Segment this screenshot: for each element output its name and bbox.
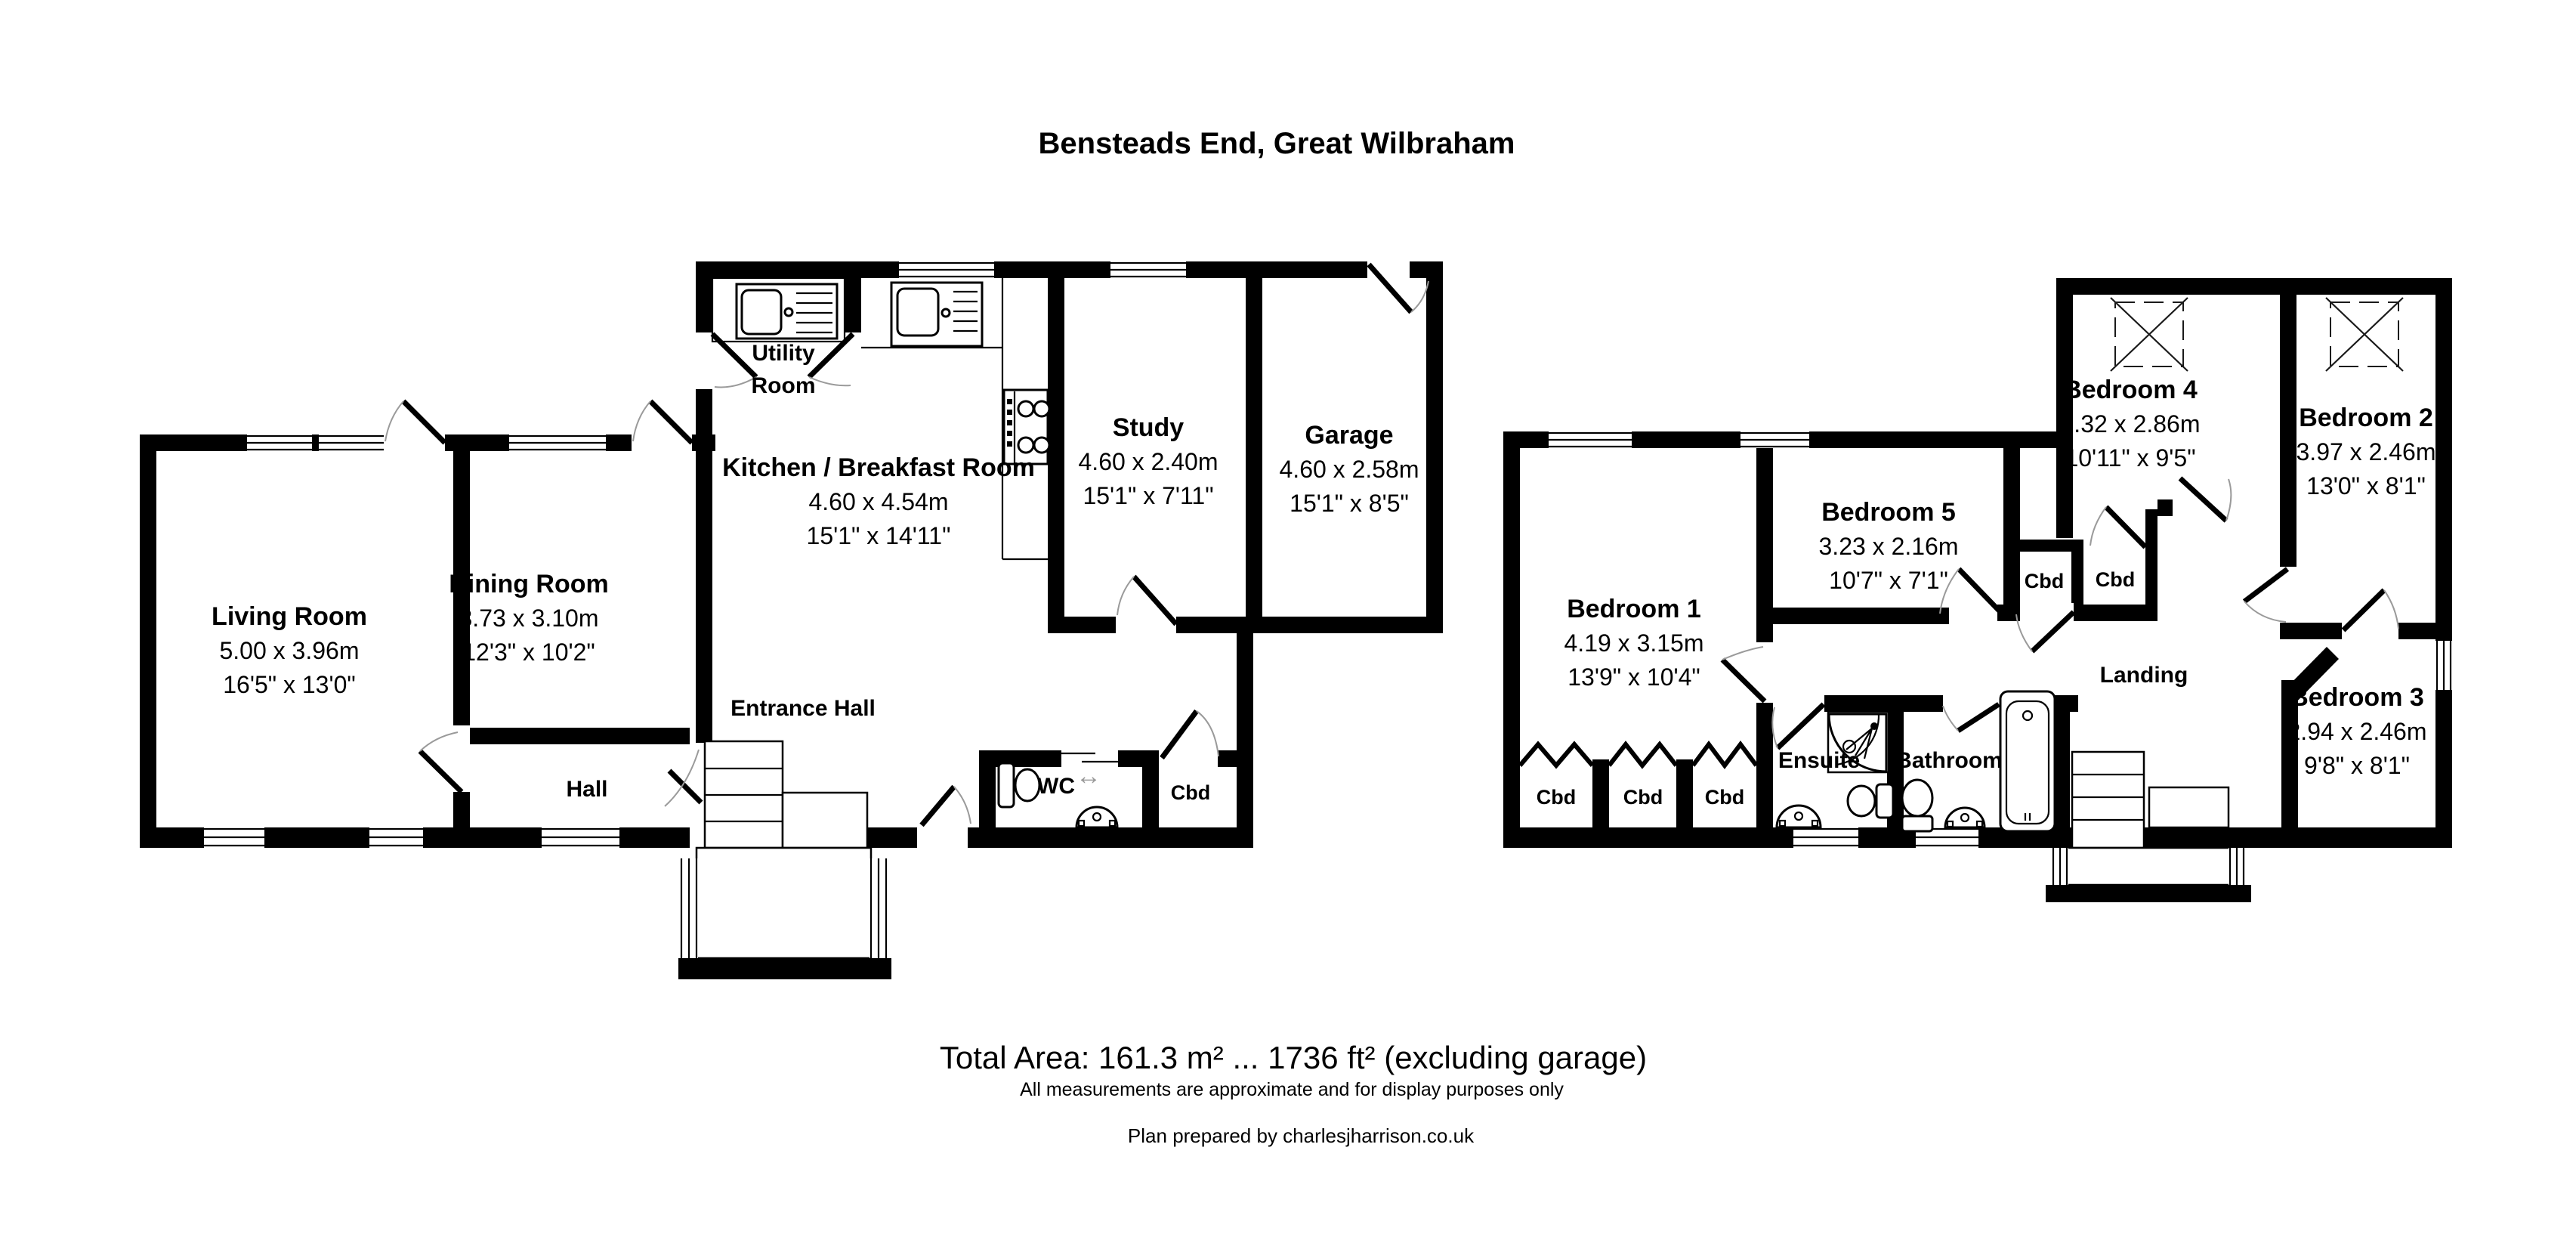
disclaimer-text: All measurements are approximate and for… — [1020, 1079, 1564, 1101]
bathroom-sink — [1945, 808, 1985, 827]
roof-window-bedroom2 — [2326, 298, 2403, 371]
room-label-bedroom-1: Bedroom 1 4.19 x 3.15m 13'9" x 10'4" — [1564, 592, 1704, 694]
room-label-garage: Garage 4.60 x 2.58m 15'1" x 8'5" — [1280, 419, 1419, 521]
wc-sink — [1076, 807, 1117, 827]
closet-label-5: Cbd — [2096, 567, 2135, 592]
room-label-hall: Hall — [566, 773, 607, 806]
first-floor-bay — [2046, 848, 2251, 902]
room-label-kitchen: Kitchen / Breakfast Room 4.60 x 4.54m 15… — [722, 451, 1035, 553]
bathroom-toilet — [1902, 780, 1932, 831]
wc-toilet — [999, 763, 1039, 807]
ensuite-toilet — [1848, 784, 1893, 818]
room-label-study: Study 4.60 x 2.40m 15'1" x 7'11" — [1079, 411, 1219, 513]
room-label-utility-room: Utility Room — [734, 337, 832, 402]
ensuite-sink — [1777, 806, 1821, 827]
closet-label-4: Cbd — [2025, 568, 2064, 594]
room-label-entrance-hall: Entrance Hall — [730, 692, 876, 725]
bedroom1-closets — [1520, 744, 1756, 765]
sliding-door-icon: ↔ — [1076, 762, 1101, 791]
closet-label-3: Cbd — [1705, 784, 1744, 810]
roof-window-bedroom4 — [2111, 298, 2188, 371]
room-label-bathroom: Bathroom — [1895, 744, 2003, 777]
room-label-living-room: Living Room 5.00 x 3.96m 16'5" x 13'0" — [212, 600, 367, 702]
room-label-bedroom-5: Bedroom 5 3.23 x 2.16m 10'7" x 7'1" — [1819, 496, 1959, 598]
porch — [678, 848, 891, 979]
room-label-bedroom-2: Bedroom 2 3.97 x 2.46m 13'0" x 8'1" — [2296, 401, 2436, 503]
floorplan-page: Bensteads End, Great Wilbraham Living Ro… — [0, 0, 2576, 1237]
room-label-bedroom-3: Bedroom 3 2.94 x 2.46m 9'8" x 8'1" — [2287, 681, 2427, 783]
room-label-ensuite: Ensuite — [1778, 744, 1860, 777]
bathtub — [2000, 691, 2055, 831]
room-label-wc: WC — [1037, 770, 1075, 803]
closet-label-1: Cbd — [1537, 784, 1576, 810]
ground-floor-stairs — [705, 741, 867, 848]
room-label-bedroom-4: Bedroom 4 3.32 x 2.86m 10'11" x 9'5" — [2061, 373, 2201, 475]
credit-text: Plan prepared by charlesjharrison.co.uk — [1128, 1124, 1474, 1148]
room-label-landing: Landing — [2100, 659, 2188, 691]
plan-title: Bensteads End, Great Wilbraham — [1039, 127, 1515, 161]
room-label-dining-room: Dining Room 3.73 x 3.10m 12'3" x 10'2" — [449, 567, 609, 670]
closet-label-gf: Cbd — [1171, 780, 1210, 806]
total-area-text: Total Area: 161.3 m² ... 1736 ft² (exclu… — [940, 1040, 1647, 1076]
closet-label-2: Cbd — [1623, 784, 1663, 810]
utility-sink — [712, 278, 845, 342]
